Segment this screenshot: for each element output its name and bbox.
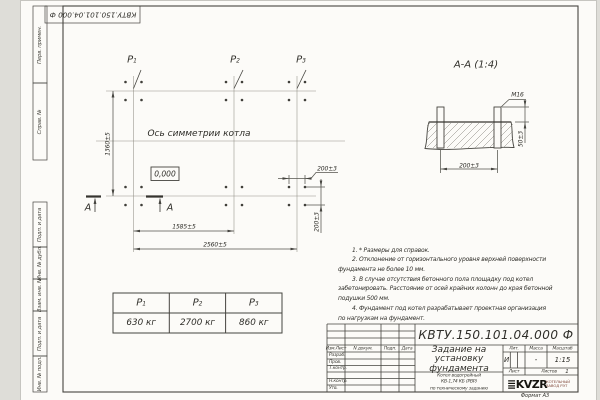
- note-line-5: забетонировать. Расстояние от осей крайн…: [338, 285, 552, 292]
- p3-sub: 3: [302, 58, 306, 65]
- tb-scale-value: 1:15: [555, 356, 571, 364]
- load-table-header-p3: P3: [249, 298, 259, 309]
- dim-2560: 2560±5: [203, 241, 227, 248]
- section-letter-a-right: А: [167, 202, 174, 213]
- tb-row-tkontr: Т.контр.: [329, 366, 347, 371]
- p2-sub: 2: [236, 58, 240, 65]
- tb-scale-label: Масштаб: [553, 346, 573, 351]
- load-label-p1: P1: [127, 55, 137, 66]
- load-table-value-p3: 860 кг: [239, 318, 269, 328]
- note-line-7: 4. Фундамент под котел разрабатывает про…: [338, 305, 546, 312]
- tb-col-doc: N докум.: [353, 346, 372, 351]
- load-table-value-p2: 2700 кг: [180, 318, 215, 328]
- tb-object-line-1: Котел водогрейный: [437, 374, 481, 379]
- load-table-header-p2: P2: [193, 298, 203, 309]
- note-line-1: 1. * Размеры для справок.: [338, 247, 430, 254]
- dim-1360: 1360±5: [104, 132, 111, 156]
- tb-lit-label: Лит.: [509, 346, 519, 351]
- margin-label-podp-data-2: Подп. и дата: [37, 316, 43, 350]
- margin-label-perv-primen: Перв. примен.: [37, 26, 43, 64]
- margin-label-sprav-n: Справ. №: [37, 109, 43, 134]
- table-p2-sub: 2: [199, 301, 203, 308]
- table-p1-sub: 1: [142, 301, 146, 308]
- dim-bolt-spacing-x: 200±3: [317, 165, 337, 172]
- load-table-value-p1: 630 кг: [126, 318, 156, 328]
- tb-sheets-label: Листов: [541, 369, 557, 374]
- kvzr-logo-text: KVZR: [516, 378, 547, 391]
- tb-title-line-3: фундамента: [429, 364, 489, 374]
- tb-row-nkontr: Н.контр.: [329, 379, 348, 384]
- kvzr-logo-subtext: КОТЕЛЬНЫЙ ЗАВОД РЭТ: [546, 380, 570, 389]
- axis-of-symmetry-label: Ось симметрии котла: [147, 129, 250, 139]
- dim-bolt-spacing-y: 200±3: [313, 212, 320, 232]
- load-table-header-p1: P1: [136, 298, 146, 309]
- kvzr-logo: ≣KVZR: [507, 378, 547, 391]
- note-line-2: 2. Отклонение от горизонтального уровня …: [338, 256, 546, 263]
- note-line-3: фундамента не более 10 мм.: [338, 266, 425, 273]
- tb-sheet-label: Лист: [509, 369, 520, 374]
- section-dim-200: 200±3: [459, 162, 479, 169]
- margin-label-inv-podl: Инв. № подл.: [37, 357, 43, 392]
- kvzr-sub-line-2: ЗАВОД РЭТ: [546, 384, 570, 389]
- tb-col-izm: Изм.Лист: [326, 346, 346, 351]
- load-label-p2: P2: [230, 55, 240, 66]
- tb-mass-label: Масса: [529, 346, 542, 351]
- tb-row-razrab: Разраб.: [329, 353, 345, 358]
- tb-col-data: Дата: [402, 346, 413, 351]
- tb-row-prov: Пров.: [329, 360, 341, 365]
- doc-number-top: КВТУ.150.101.04.000 Ф: [49, 10, 136, 19]
- format-note: Формат А3: [521, 393, 549, 399]
- thread-label-m16: М16: [511, 92, 524, 99]
- tb-row-utv: Утв.: [329, 386, 338, 391]
- elevation-mark: 0,000: [154, 169, 175, 178]
- load-label-p3: P3: [296, 55, 306, 66]
- section-dim-50: 50±3: [517, 131, 524, 147]
- drawing-sheet-photo: КВТУ.150.101.04.000 Ф Перв. примен. Спра…: [0, 0, 600, 400]
- tb-object-line-3: по техническому заданию: [430, 386, 488, 391]
- table-p3-sub: 3: [255, 301, 259, 308]
- tb-object-line-2: КВ-1,74 КБ (РВР): [441, 380, 477, 385]
- margin-label-vzam-inv: Взам. инв. №: [37, 278, 43, 312]
- note-line-8: по нагрузкам на фундамент.: [338, 315, 425, 322]
- tb-title-line-1: Задание на: [432, 345, 487, 355]
- tb-sheets-value: 1: [565, 369, 569, 375]
- section-view-title: А-А (1:4): [454, 59, 498, 70]
- tb-lit-value: И: [504, 356, 509, 364]
- tb-mass-value: -: [535, 356, 538, 364]
- note-line-6: подушки 500 мм.: [338, 295, 390, 302]
- tb-title-line-2: установку: [435, 354, 484, 364]
- note-line-4: 3. В случае отсутствия бетонного пола пл…: [338, 276, 533, 283]
- margin-label-podp-data-1: Подп. и дата: [37, 207, 43, 241]
- doc-number-main: КВТУ.150.101.04.000 Ф: [418, 328, 573, 342]
- margin-label-inv-dubl: Инв. № дубл.: [37, 246, 43, 280]
- p1-sub: 1: [133, 58, 137, 65]
- tb-col-podp: Подп.: [384, 346, 397, 351]
- dim-1585: 1585±5: [172, 223, 196, 230]
- section-letter-a-left: А: [85, 203, 92, 214]
